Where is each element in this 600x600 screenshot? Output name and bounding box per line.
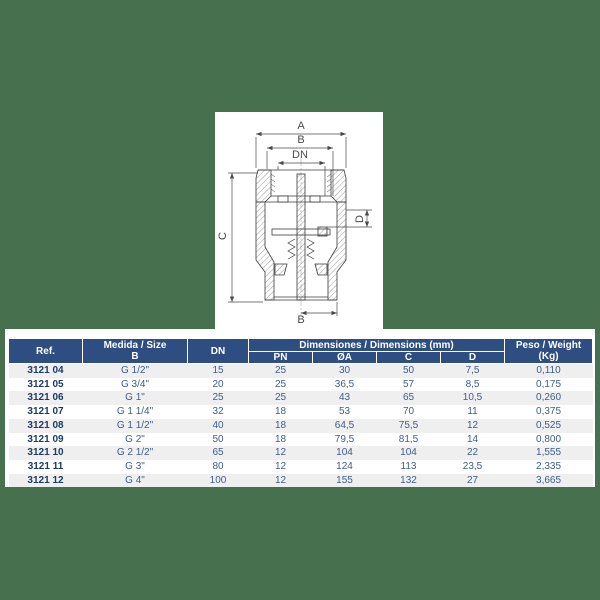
cell-kg: 2,335 xyxy=(505,460,593,474)
table-row: 3121 06 G 1" 25 25 43 65 10,5 0,260 xyxy=(9,391,593,405)
cell-d: 10,5 xyxy=(441,391,505,405)
cell-pn: 25 xyxy=(249,364,313,378)
dim-label-c: C xyxy=(217,232,229,240)
spec-table: Ref. Medida / Size B DN Dimensiones / Di… xyxy=(8,338,593,487)
cell-da: 155 xyxy=(313,474,377,488)
cell-size: G 2" xyxy=(83,433,188,447)
cell-d: 23,5 xyxy=(441,460,505,474)
dim-label-a: A xyxy=(297,120,305,132)
cell-d: 12 xyxy=(441,419,505,433)
cell-ref: 3121 04 xyxy=(9,364,83,378)
col-header-weight-line2: (Kg) xyxy=(505,351,592,362)
cell-kg: 0,110 xyxy=(505,364,593,378)
col-header-d: D xyxy=(441,352,505,364)
cell-da: 79,5 xyxy=(313,433,377,447)
table-row: 3121 05 G 3/4" 20 25 36,5 57 8,5 0,175 xyxy=(9,378,593,392)
cell-c: 50 xyxy=(377,364,441,378)
col-header-c: C xyxy=(377,352,441,364)
table-row: 3121 12 G 4" 100 12 155 132 27 3,665 xyxy=(9,474,593,488)
valve-drawing-panel: A B DN C D B xyxy=(215,112,383,329)
cell-kg: 0,800 xyxy=(505,433,593,447)
cell-ref: 3121 08 xyxy=(9,419,83,433)
col-header-dimensions-group: Dimensiones / Dimensions (mm) xyxy=(249,339,505,352)
cell-c: 57 xyxy=(377,378,441,392)
cell-dn: 100 xyxy=(188,474,249,488)
cell-pn: 25 xyxy=(249,378,313,392)
cell-ref: 3121 07 xyxy=(9,405,83,419)
cell-pn: 18 xyxy=(249,419,313,433)
cell-c: 70 xyxy=(377,405,441,419)
cell-kg: 1,555 xyxy=(505,446,593,460)
valve-body xyxy=(256,170,346,300)
col-header-ref: Ref. xyxy=(9,339,83,364)
cell-c: 81,5 xyxy=(377,433,441,447)
cell-c: 113 xyxy=(377,460,441,474)
cell-pn: 25 xyxy=(249,391,313,405)
cell-c: 65 xyxy=(377,391,441,405)
cell-d: 22 xyxy=(441,446,505,460)
cell-d: 27 xyxy=(441,474,505,488)
cell-da: 36,5 xyxy=(313,378,377,392)
cell-c: 132 xyxy=(377,474,441,488)
cell-dn: 15 xyxy=(188,364,249,378)
cell-da: 104 xyxy=(313,446,377,460)
cell-ref: 3121 12 xyxy=(9,474,83,488)
cell-pn: 12 xyxy=(249,460,313,474)
cell-kg: 0,525 xyxy=(505,419,593,433)
cell-size: G 2 1/2" xyxy=(83,446,188,460)
cell-kg: 0,260 xyxy=(505,391,593,405)
cell-ref: 3121 10 xyxy=(9,446,83,460)
cell-da: 64,5 xyxy=(313,419,377,433)
cell-dn: 32 xyxy=(188,405,249,419)
table-row: 3121 11 G 3" 80 12 124 113 23,5 2,335 xyxy=(9,460,593,474)
cell-dn: 50 xyxy=(188,433,249,447)
col-header-size-line2: B xyxy=(83,351,187,362)
dim-label-b-bottom: B xyxy=(297,314,304,326)
dim-label-dn: DN xyxy=(292,149,308,161)
cell-d: 14 xyxy=(441,433,505,447)
cell-kg: 0,375 xyxy=(505,405,593,419)
col-header-size-line1: Medida / Size xyxy=(104,340,167,351)
cell-da: 124 xyxy=(313,460,377,474)
catalog-page: { "colors": { "page_background": "#47714… xyxy=(0,0,600,600)
cell-ref: 3121 06 xyxy=(9,391,83,405)
cell-size: G 3" xyxy=(83,460,188,474)
cell-size: G 3/4" xyxy=(83,378,188,392)
cell-dn: 20 xyxy=(188,378,249,392)
check-valve-section-drawing: A B DN C D B xyxy=(215,112,383,329)
cell-da: 43 xyxy=(313,391,377,405)
cell-dn: 40 xyxy=(188,419,249,433)
cell-c: 75,5 xyxy=(377,419,441,433)
cell-size: G 4" xyxy=(83,474,188,488)
cell-pn: 18 xyxy=(249,405,313,419)
spec-table-panel: Ref. Medida / Size B DN Dimensiones / Di… xyxy=(5,329,595,487)
table-row: 3121 04 G 1/2" 15 25 30 50 7,5 0,110 xyxy=(9,364,593,378)
cell-pn: 18 xyxy=(249,433,313,447)
table-row: 3121 08 G 1 1/2" 40 18 64,5 75,5 12 0,52… xyxy=(9,419,593,433)
cell-ref: 3121 09 xyxy=(9,433,83,447)
table-row: 3121 07 G 1 1/4" 32 18 53 70 11 0,375 xyxy=(9,405,593,419)
cell-size: G 1 1/2" xyxy=(83,419,188,433)
cell-pn: 12 xyxy=(249,474,313,488)
table-row: 3121 10 G 2 1/2" 65 12 104 104 22 1,555 xyxy=(9,446,593,460)
cell-kg: 3,665 xyxy=(505,474,593,488)
cell-size: G 1 1/4" xyxy=(83,405,188,419)
cell-ref: 3121 05 xyxy=(9,378,83,392)
col-header-dn: DN xyxy=(188,339,249,364)
col-header-weight: Peso / Weight (Kg) xyxy=(505,339,593,364)
cell-da: 30 xyxy=(313,364,377,378)
table-row: 3121 09 G 2" 50 18 79,5 81,5 14 0,800 xyxy=(9,433,593,447)
cell-size: G 1/2" xyxy=(83,364,188,378)
cell-ref: 3121 11 xyxy=(9,460,83,474)
col-header-size: Medida / Size B xyxy=(83,339,188,364)
dim-label-d: D xyxy=(354,215,366,223)
cell-size: G 1" xyxy=(83,391,188,405)
cell-d: 7,5 xyxy=(441,364,505,378)
cell-dn: 25 xyxy=(188,391,249,405)
cell-dn: 65 xyxy=(188,446,249,460)
dim-label-b-top: B xyxy=(297,134,304,146)
cell-d: 8,5 xyxy=(441,378,505,392)
col-header-weight-line1: Peso / Weight xyxy=(516,340,581,351)
cell-kg: 0,175 xyxy=(505,378,593,392)
cell-dn: 80 xyxy=(188,460,249,474)
cell-da: 53 xyxy=(313,405,377,419)
col-header-oa: ØA xyxy=(313,352,377,364)
col-header-pn: PN xyxy=(249,352,313,364)
cell-c: 104 xyxy=(377,446,441,460)
cell-pn: 12 xyxy=(249,446,313,460)
cell-d: 11 xyxy=(441,405,505,419)
